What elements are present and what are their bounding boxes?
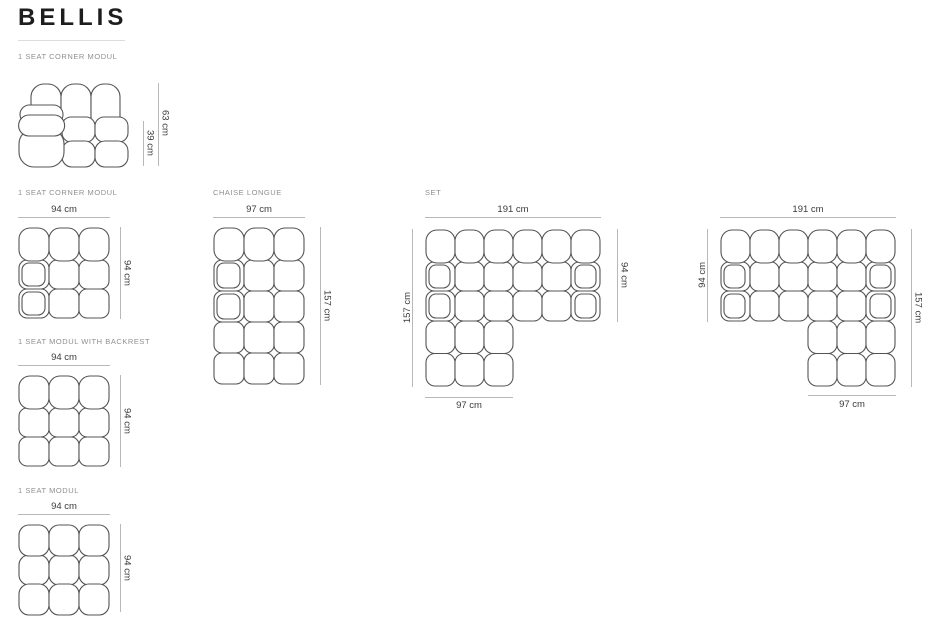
corner-module-side-drawing <box>18 83 130 168</box>
page-title: BELLIS <box>18 4 127 32</box>
dim-sofa-depth: 94 cm <box>696 258 708 292</box>
dim-line-total-width <box>720 217 896 218</box>
dim-line-chaise-width <box>425 397 513 398</box>
dim-depth-label: 94 cm <box>122 408 133 434</box>
figure-label: 1 SEAT CORNER MODUL <box>18 188 117 197</box>
backrest-module-drawing <box>18 375 110 467</box>
dim-depth: 94 cm <box>121 256 133 290</box>
title-underline <box>18 40 125 41</box>
figure-label: 1 SEAT MODUL <box>18 486 79 495</box>
dim-depth: 94 cm <box>121 404 133 438</box>
dim-chaise-depth-label: 157 cm <box>913 292 924 323</box>
set-left-chaise-drawing <box>425 229 601 387</box>
figure-label: SET <box>425 188 441 197</box>
figure-label: CHAISE LONGUE <box>213 188 282 197</box>
dim-chaise-width-label: 97 cm <box>425 400 513 411</box>
dim-total-width-label: 191 cm <box>720 204 896 215</box>
dim-line-chaise-width <box>808 395 896 396</box>
dim-seat-height: 39 cm <box>144 126 156 160</box>
set-right-chaise-drawing <box>720 229 896 387</box>
dim-width-label: 94 cm <box>18 352 110 363</box>
figure-module-with-backrest: 1 SEAT MODUL WITH BACKREST 94 cm 94 cm <box>18 337 153 472</box>
dim-depth-label: 94 cm <box>122 555 133 581</box>
seat-module-drawing <box>18 524 110 616</box>
figure-corner-module-top: 1 SEAT CORNER MODUL 94 cm 94 cm <box>18 188 153 323</box>
dim-width-label: 97 cm <box>213 204 305 215</box>
dim-chaise-depth: 157 cm <box>401 288 413 328</box>
dim-depth: 157 cm <box>321 286 333 326</box>
product-dimension-sheet: BELLIS 1 SEAT CORNER MODUL 39 cm 63 cm 1… <box>0 0 940 620</box>
dim-chaise-width-label: 97 cm <box>808 399 896 410</box>
figure-label: 1 SEAT MODUL WITH BACKREST <box>18 337 150 346</box>
dim-width-label: 94 cm <box>18 204 110 215</box>
figure-seat-module: 1 SEAT MODUL 94 cm 94 cm <box>18 486 153 620</box>
figure-chaise-longue: CHAISE LONGUE 97 cm 157 cm <box>213 188 348 398</box>
dim-depth-label: 157 cm <box>322 290 333 321</box>
dim-sofa-depth: 94 cm <box>618 258 630 292</box>
dim-sofa-depth-label: 94 cm <box>697 262 708 288</box>
figure-set-left-chaise: SET 191 cm 94 cm 157 cm 97 cm <box>400 188 645 413</box>
dim-depth: 94 cm <box>121 551 133 585</box>
dim-chaise-depth: 157 cm <box>912 288 924 328</box>
figure-corner-module-side: 1 SEAT CORNER MODUL 39 cm 63 cm <box>18 52 183 177</box>
chaise-longue-drawing <box>213 227 305 385</box>
header: BELLIS <box>18 4 178 44</box>
dim-depth-label: 94 cm <box>122 260 133 286</box>
corner-module-top-drawing <box>18 227 110 319</box>
dim-line-total-width <box>425 217 601 218</box>
dim-total-height: 63 cm <box>159 106 171 140</box>
dim-line-width <box>18 365 110 366</box>
figure-label: 1 SEAT CORNER MODUL <box>18 52 117 61</box>
dim-sofa-depth-label: 94 cm <box>619 262 630 288</box>
dim-total-width-label: 191 cm <box>425 204 601 215</box>
dim-line-width <box>18 514 110 515</box>
figure-set-right-chaise: 191 cm 94 cm 157 cm 97 cm <box>695 188 940 413</box>
dim-chaise-depth-label: 157 cm <box>402 292 413 323</box>
dim-seat-height-label: 39 cm <box>145 130 156 156</box>
dim-width-label: 94 cm <box>18 501 110 512</box>
dim-total-height-label: 63 cm <box>160 110 171 136</box>
dim-line-width <box>18 217 110 218</box>
dim-line-width <box>213 217 305 218</box>
